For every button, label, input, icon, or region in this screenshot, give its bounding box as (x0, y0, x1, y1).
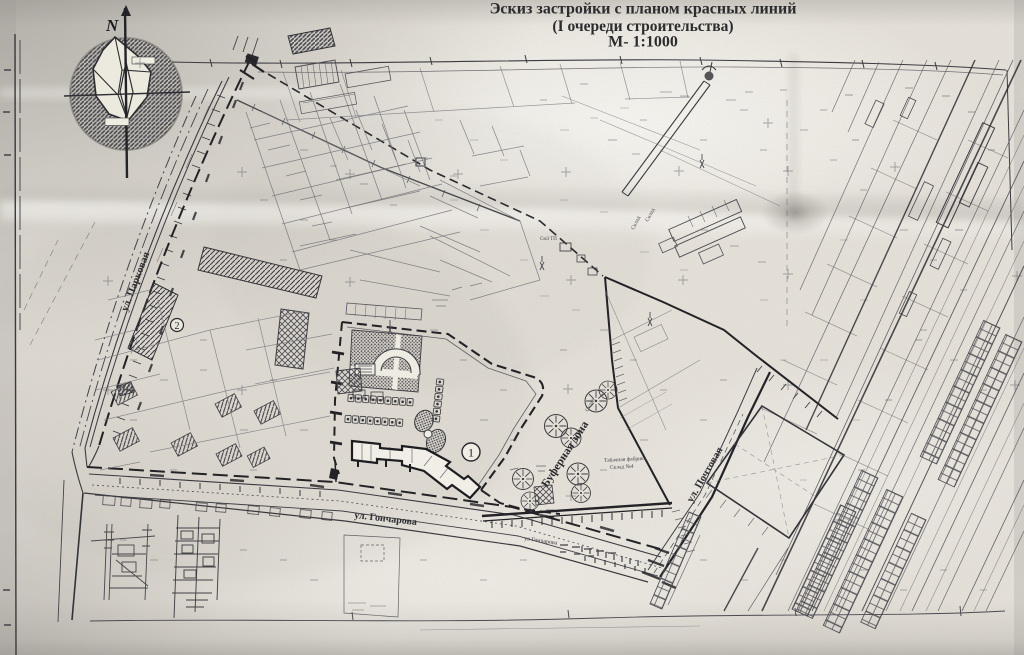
svg-text:2: 2 (175, 321, 180, 332)
svg-text:М- 1:1000: М- 1:1000 (608, 34, 678, 51)
svg-text:1: 1 (468, 446, 474, 460)
svg-text:(I очереди строительства): (I очереди строительства) (552, 18, 733, 35)
svg-text:N: N (105, 16, 119, 35)
svg-text:СмЗ ТП: СмЗ ТП (540, 237, 557, 242)
svg-text:Эскиз застройки с планом красн: Эскиз застройки с планом красных линий (490, 1, 797, 18)
svg-text:Склад №4: Склад №4 (610, 464, 634, 471)
